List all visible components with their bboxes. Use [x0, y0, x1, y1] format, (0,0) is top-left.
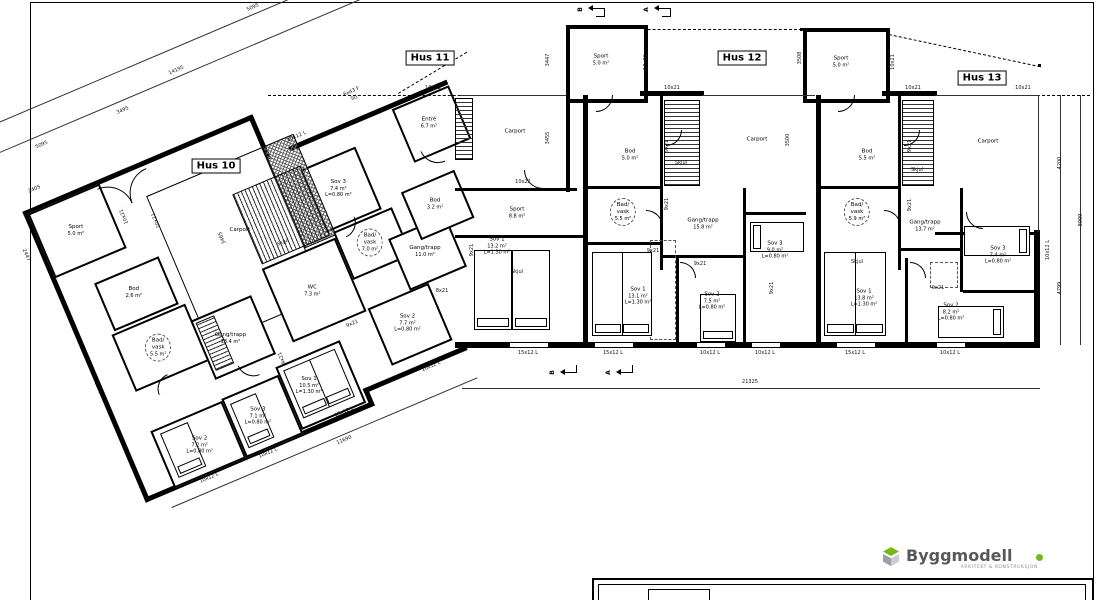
wall	[566, 95, 570, 192]
window	[696, 342, 726, 348]
dim-3447: 3447	[545, 54, 551, 67]
door-10x21: 10x21	[643, 54, 649, 70]
section-letter: B	[577, 7, 584, 12]
label-h10-gang: Gang/trapp13.4 m²	[215, 332, 246, 345]
section-marker-b-top: B	[580, 2, 604, 24]
door-10x21: 10x21	[425, 85, 441, 91]
wall	[585, 186, 663, 189]
wall	[640, 91, 704, 96]
sheet-border-top	[30, 2, 1094, 3]
wall	[960, 188, 963, 292]
door-10x21: 10x21	[515, 179, 531, 185]
door-9x21: 9x21	[277, 351, 287, 365]
dim-4200: 4200	[1057, 157, 1063, 170]
window-15x12: 15x12 L	[603, 350, 623, 356]
label-h12-bod: Bod5.0 m²	[622, 148, 638, 161]
label-h11-gang: Gang/trapp11.0 m²	[409, 245, 440, 258]
label-h13-bod: Bod5.5 m²	[859, 148, 875, 161]
door-10x21: 10x21	[118, 208, 130, 225]
bed	[512, 250, 550, 330]
section-marker-a-top: A	[646, 2, 670, 24]
label-h10-sov3: Sov 37.1 m²L=0.80 m²	[245, 406, 272, 425]
wall	[816, 95, 821, 345]
door-9x21: 9x21	[932, 285, 945, 291]
dim-21325: 21325	[742, 379, 758, 385]
label-h11-sov1: Sov 113.2 m²L=1.30 m²	[484, 236, 511, 255]
door-arc	[596, 95, 613, 112]
dim-line	[0, 0, 426, 143]
wall	[583, 95, 588, 345]
label-h12-carport: Carport	[747, 137, 768, 144]
label-h13-sov1: Sov 113.8 m²L=1.30 m²	[851, 288, 878, 307]
window-15x12: 15x12 L	[518, 350, 538, 356]
wall	[746, 212, 806, 215]
house-label-hus12: Hus 12	[718, 51, 767, 66]
byggmodell-logo: Byggmodell ARKITEKT & KONSTRUKSJON	[878, 545, 1048, 577]
label-h10-carport: Carport	[230, 227, 251, 234]
dim-3455: 3455	[545, 132, 551, 145]
window	[594, 342, 634, 348]
label-h10-bod: Bod2.6 m²	[126, 286, 142, 299]
label-h11-sov3: Sov 37.4 m²L=0.80 m²	[325, 179, 352, 198]
logo-cube-icon	[880, 547, 902, 569]
sheet-border-right	[1093, 2, 1094, 600]
section-marker-a-bottom: A	[608, 364, 634, 384]
label-shed1-sport: Sport5.0 m²	[593, 53, 609, 66]
window	[936, 342, 966, 348]
carport-edge	[1038, 95, 1039, 235]
label-h13-sov2: Sov 28.2 m²L=0.80 m²	[938, 302, 965, 321]
carport-edge	[935, 95, 1040, 96]
door-9x21: 9x21	[664, 198, 670, 211]
dim-line-21325	[462, 388, 1040, 389]
door-10x21: 10x21	[664, 85, 680, 91]
section-hook	[568, 365, 577, 373]
door-10x21: 10x21	[890, 54, 896, 70]
wall	[676, 258, 679, 345]
section-hook	[662, 8, 671, 17]
house-label-hus11: Hus 11	[406, 51, 455, 66]
window-10x12: 10x12 L	[700, 350, 720, 356]
boundary-dash-slant	[884, 33, 1041, 67]
label-h10-sov1: Sov 110.5 m²L=1.30 m²	[296, 376, 323, 395]
label-h10-wc: WC7.3 m²	[304, 284, 320, 297]
section-letter: A	[643, 7, 650, 12]
window-10x12: 10x12 L	[940, 350, 960, 356]
section-letter: B	[549, 370, 556, 375]
label-skjul: Skjul	[911, 167, 923, 173]
door-10x21: 10x21	[1015, 85, 1031, 91]
window	[751, 342, 781, 348]
carport-edge	[702, 95, 815, 96]
label-h12-sov3: Sov 39.0 m²L=0.80 m²	[762, 240, 789, 259]
label-skjul: Skjul	[675, 160, 687, 166]
door-9x21: 9x21	[647, 248, 660, 254]
wall	[455, 235, 583, 238]
logo-wordmark: Byggmodell	[906, 546, 1012, 565]
dim-3500: 3500	[785, 134, 791, 147]
label-h10-sport: Sport5.0 m²	[68, 224, 84, 237]
door-arc	[838, 95, 855, 112]
label-h10-sov2: Sov 27.2 m²L=0.80 m²	[186, 435, 213, 454]
label-h11-sov2: Sov 27.7 m²L=0.80 m²	[394, 314, 421, 333]
dim-line	[1060, 95, 1061, 345]
wall	[963, 290, 1038, 293]
door-9x21: 9x21	[469, 244, 475, 257]
label-h10-bad: Bad/vask5.5 m²	[145, 334, 171, 362]
section-marker-b-bottom: B	[552, 364, 578, 384]
section-letter: A	[605, 370, 612, 375]
door-9x21: 9x21	[907, 140, 913, 153]
wardrobe-skjul	[650, 240, 676, 340]
wall	[898, 95, 901, 270]
marker	[1038, 64, 1041, 67]
label-shed2-sport: Sport5.0 m²	[833, 55, 849, 68]
door-9x21: 9x21	[694, 261, 707, 267]
wall	[455, 188, 577, 191]
door-9x21: 9x21	[907, 199, 913, 212]
dim-3495: 3495	[116, 105, 130, 115]
label-h11-sport: Sport8.8 m²	[509, 206, 525, 219]
sheet-border-left	[30, 2, 31, 600]
bed	[474, 250, 512, 330]
label-h13-gang: Gang/trapp13.7 m²	[909, 219, 940, 232]
window	[509, 342, 549, 348]
title-block-cell	[648, 589, 710, 600]
floor-plan-sheet: Sport5.0 m² Carport Bod2.6 m² Bad/vask5.…	[0, 0, 1100, 600]
label-h11-entre: Entré6.7 m²	[421, 116, 437, 129]
door-9x21: 9x21	[345, 319, 359, 329]
label-skjul: Skjul	[851, 259, 863, 265]
dim-5095: 5095	[35, 140, 49, 150]
wall	[820, 186, 901, 189]
label-h13-bad: Bad/vask5.9 m²	[844, 198, 870, 226]
label-h13-sov3: Sov 37.4 m²L=0.80 m²	[985, 245, 1012, 264]
dim-4799: 4799	[1057, 282, 1063, 295]
wall	[905, 258, 908, 345]
section-hook	[596, 8, 605, 17]
label-skjul: Skjul	[511, 269, 523, 275]
label-h12-sov1: Sov 113.1 m²L=1.30 m²	[625, 286, 652, 305]
dim-3508: 3508	[797, 52, 803, 65]
label-h13-carport: Carport	[978, 139, 999, 146]
label-h12-gang: Gang/trapp15.8 m²	[687, 217, 718, 230]
dim-line	[0, 0, 414, 165]
door-arc	[910, 262, 926, 278]
door-9x21: 9x21	[664, 140, 670, 153]
window-10x12-right: 10x12 L	[1045, 240, 1051, 260]
window	[836, 342, 876, 348]
window-15x12: 15x12 L	[845, 350, 865, 356]
door-8x21: 8x21	[436, 288, 449, 294]
logo-dot-icon	[1036, 554, 1043, 561]
wall	[900, 248, 962, 251]
house-label-hus13: Hus 13	[958, 71, 1007, 86]
carport-edge	[460, 95, 568, 96]
logo-tagline: ARKITEKT & KONSTRUKSJON	[908, 565, 1038, 570]
label-h11-carport: Carport	[505, 129, 526, 136]
label-h11-bod: Bod3.2 m²	[427, 197, 443, 210]
wall-right	[1034, 230, 1040, 348]
door-9x21: 9x21	[769, 282, 775, 295]
dim-8999: 8999	[1078, 214, 1084, 227]
window-10x12: 10x12 L	[755, 350, 775, 356]
label-h12-bad: Bad/vask5.5 m²	[610, 198, 636, 226]
section-hook	[624, 365, 633, 373]
stair-hatch	[455, 98, 473, 160]
label-h11-bad: Bad/vask7.0 m²	[357, 228, 383, 256]
door-10x21: 10x21	[905, 85, 921, 91]
label-h12-sov2: Sov 27.5 m²L=0.80 m²	[699, 291, 726, 310]
house-label-hus10: Hus 10	[192, 159, 241, 174]
wall	[882, 91, 937, 96]
